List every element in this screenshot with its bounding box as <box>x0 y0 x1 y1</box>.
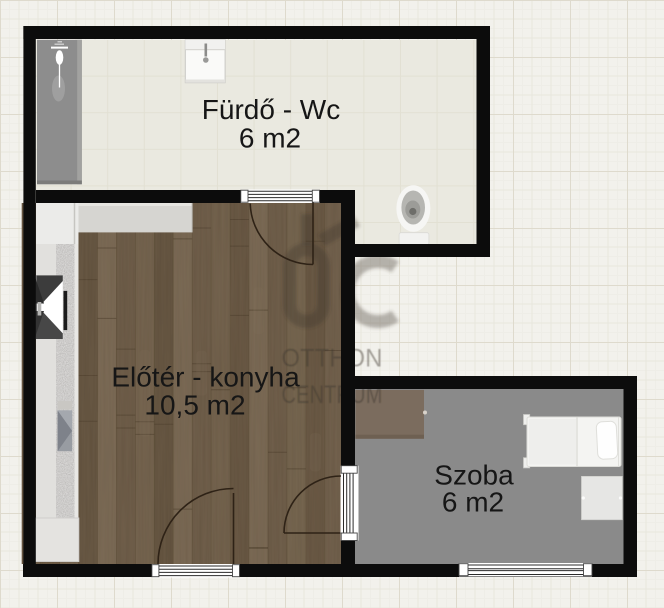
svg-text:6 m2: 6 m2 <box>442 487 504 518</box>
svg-text:Fürdő - Wc: Fürdő - Wc <box>202 94 340 125</box>
svg-text:Előtér - konyha: Előtér - konyha <box>111 362 300 393</box>
svg-text:10,5 m2: 10,5 m2 <box>144 390 245 421</box>
svg-text:6 m2: 6 m2 <box>239 123 301 154</box>
